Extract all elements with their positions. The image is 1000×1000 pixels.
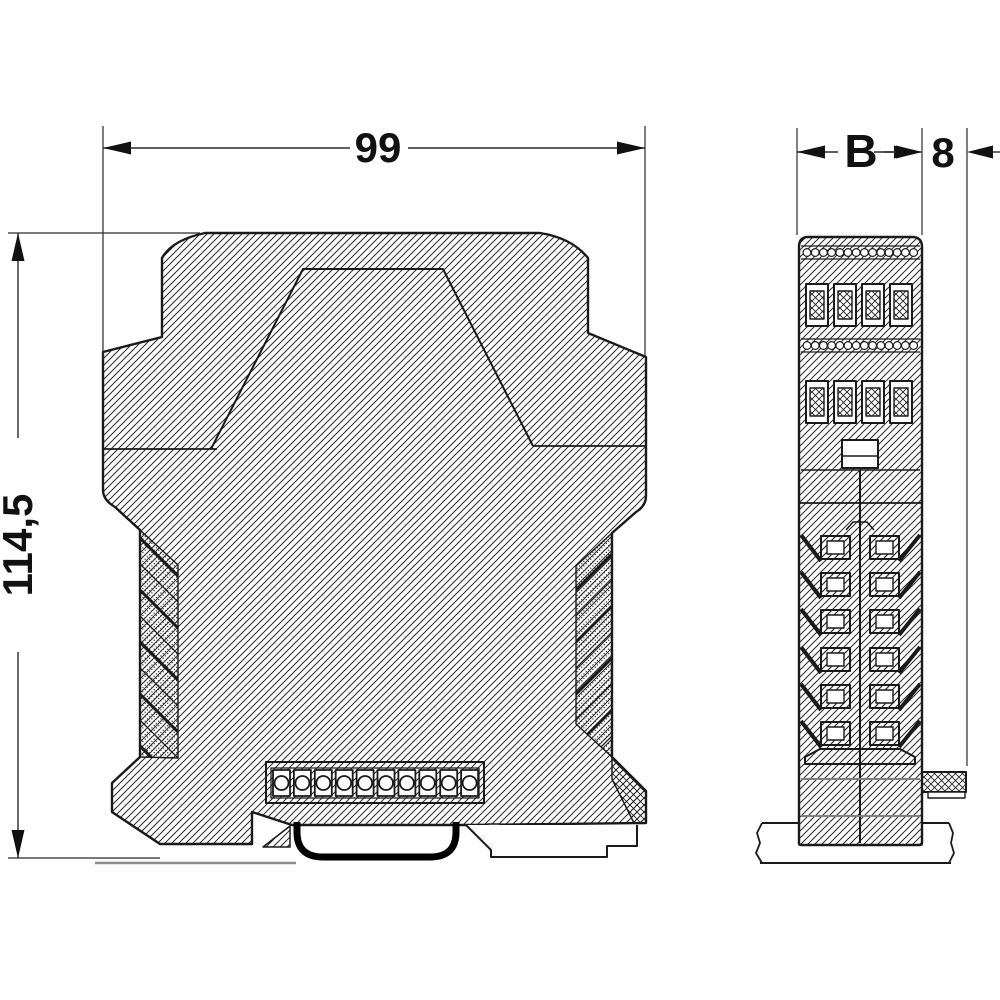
arrowhead-top [12, 233, 25, 261]
arrowhead-right [617, 142, 645, 155]
dim-label-module-width: B [844, 125, 877, 177]
module-body [103, 233, 646, 844]
arrowhead-left-inward [896, 146, 922, 159]
din-rail-clip [297, 822, 456, 857]
dim-label-overall-width: 99 [355, 124, 402, 171]
dimension-module-width: B [797, 125, 922, 235]
arrowhead-bottom [12, 830, 25, 858]
latch-tab [922, 772, 966, 792]
latch-foot [466, 825, 637, 857]
arrowhead-left [103, 142, 131, 155]
arrowhead-left [797, 146, 825, 159]
arrowhead-right-inward [967, 146, 993, 159]
dim-label-overall-height: 114,5 [0, 494, 41, 597]
side-view [95, 233, 646, 863]
din-rail-module-drawing: 99 114,5 B 8 [0, 0, 1000, 1000]
left-terminal-band [134, 530, 184, 790]
rail-hook [263, 826, 290, 847]
latch-tab-lip [928, 792, 965, 798]
connector-detail [842, 440, 878, 468]
dim-label-latch-depth: 8 [931, 129, 954, 176]
technical-drawing-canvas: 99 114,5 B 8 [0, 0, 1000, 1000]
front-view [756, 237, 966, 863]
